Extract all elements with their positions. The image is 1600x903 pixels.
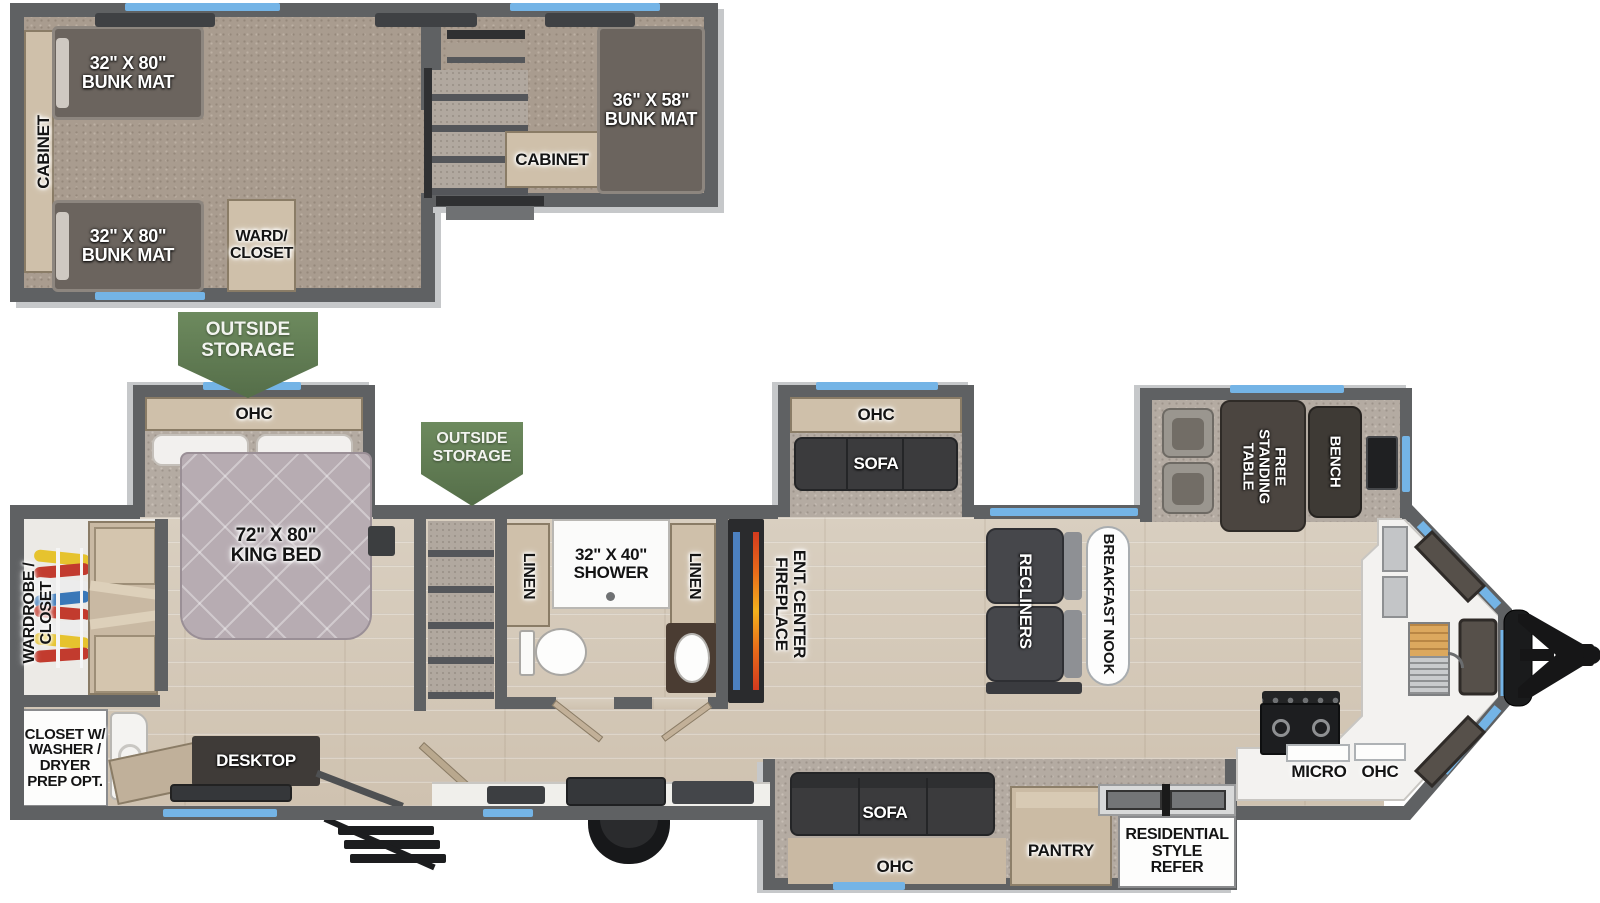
bench-label: BENCH	[1326, 407, 1343, 517]
bedroom-wall	[155, 519, 168, 691]
outside-storage-label: OUTSIDE STORAGE	[201, 320, 295, 362]
bottom-wall	[10, 806, 770, 820]
sofa-slide-ohc-label: OHC	[858, 406, 895, 424]
top-wall	[373, 505, 778, 519]
front-window	[1460, 620, 1496, 694]
loft-window	[95, 292, 205, 300]
wardrobe-cabinet	[88, 521, 158, 695]
main-entry-door	[566, 777, 666, 806]
loft-cabinet-mid-label: CABINET	[515, 151, 588, 169]
roof-vent	[545, 13, 635, 27]
free-standing-table-label: FREE STANDING TABLE	[1237, 412, 1288, 522]
shower-drain	[606, 592, 615, 601]
window	[816, 382, 938, 390]
window	[1402, 436, 1410, 492]
bunk-mat-top-label: 32" X 80" BUNK MAT	[82, 54, 174, 92]
dinette-chair	[1162, 408, 1214, 458]
outside-storage-label: OUTSIDE STORAGE	[433, 430, 512, 465]
king-bed-label: 72" X 80" KING BED	[231, 526, 322, 566]
ent-center-label: ENT. CENTER FIREPLACE	[770, 519, 808, 689]
kitchen-ohc-label: OHC	[1352, 763, 1408, 781]
wardrobe-closet-label: WARDROBE / CLOSET	[22, 548, 58, 678]
slide-sofa-label: SOFA	[853, 455, 898, 473]
refer-label-box: RESIDENTIAL STYLE REFER	[1118, 816, 1236, 888]
loft-stair-landing-rail	[436, 196, 544, 206]
window	[990, 508, 1138, 516]
exterior-steps	[328, 820, 444, 866]
bath-sink	[674, 633, 710, 683]
door-slide-sofa-label: SOFA	[840, 804, 930, 822]
roof-vent	[375, 13, 477, 27]
breakfast-nook-label: BREAKFAST NOOK	[1099, 519, 1117, 689]
shower-label: 32" X 40" SHOWER	[574, 546, 649, 582]
ohc-cabinet	[1354, 743, 1406, 761]
window	[833, 882, 905, 890]
linen-left-label: LINEN	[518, 526, 536, 626]
recliner-base	[986, 682, 1082, 694]
counter-step	[487, 786, 545, 804]
loft-skylight-window	[125, 3, 280, 11]
fireplace-strip	[753, 532, 759, 690]
loft-stair-rail	[424, 68, 432, 198]
rv-floorplan: CABINET 32" X 80" BUNK MAT 32" X 80" BUN…	[0, 0, 1600, 903]
recliner-footrest	[1064, 532, 1082, 600]
window	[163, 809, 277, 817]
kitchen-sink	[1408, 622, 1450, 696]
loft-ward-closet: WARD/ CLOSET	[227, 199, 296, 292]
pantry-label: PANTRY	[1014, 842, 1108, 860]
bedroom-ohc-label: OHC	[236, 405, 273, 423]
microwave-cabinet	[1286, 744, 1350, 762]
loft-skylight-window	[510, 3, 660, 11]
bunk-mat-top: 32" X 80" BUNK MAT	[52, 26, 204, 120]
bunk-mat-bottom-label: 32" X 80" BUNK MAT	[82, 227, 174, 265]
king-bed: 72" X 80" KING BED	[180, 452, 372, 640]
desktop-label: DESKTOP	[216, 752, 296, 770]
loft-cabinet-mid: CABINET	[505, 131, 599, 188]
hitch-crossbar	[1520, 649, 1554, 661]
door-slide-ohc-label: OHC	[850, 858, 940, 876]
closet-rod	[80, 548, 83, 668]
toilet	[519, 630, 535, 676]
recliners-label: RECLINERS	[1014, 521, 1034, 681]
toilet-bowl	[535, 628, 587, 676]
loft-ward-closet-label: WARD/ CLOSET	[230, 229, 293, 263]
main-staircase	[428, 521, 494, 699]
entry-window	[672, 781, 754, 804]
refer-label: RESIDENTIAL STYLE REFER	[1125, 827, 1228, 877]
sofa-cushion-line	[902, 439, 904, 489]
desktop-tray	[170, 784, 292, 802]
linen-right-label: LINEN	[684, 526, 702, 626]
roof-vent	[95, 13, 215, 27]
nightstand	[368, 526, 395, 556]
tv-strip	[733, 532, 740, 690]
bunk-mat-right: 36" X 58" BUNK MAT	[597, 26, 705, 194]
wd-closet-label: CLOSET W/ WASHER / DRYER PREP OPT.	[25, 727, 106, 790]
tall-cabinet	[1382, 576, 1408, 618]
dinette-chair	[1162, 462, 1214, 514]
bunk-mat-right-label: 36" X 58" BUNK MAT	[605, 91, 697, 129]
bath-wall-right	[716, 519, 728, 703]
bunk-mat-bottom: 32" X 80" BUNK MAT	[52, 200, 204, 292]
micro-label: MICRO	[1288, 763, 1350, 781]
slide-sofa: SOFA	[794, 437, 958, 491]
window	[483, 809, 533, 817]
outside-storage-banner: OUTSIDE STORAGE	[421, 422, 523, 506]
stair-wall	[414, 519, 426, 711]
bunk-pillow	[56, 212, 69, 280]
sofa-cushion-line	[846, 439, 848, 489]
window	[1230, 385, 1344, 393]
bunk-pillow	[56, 38, 69, 108]
bedroom-ohc-cabinet: OHC	[145, 397, 363, 431]
wd-closet-label-box: CLOSET W/ WASHER / DRYER PREP OPT.	[22, 709, 108, 807]
bath-wall-left	[495, 519, 507, 709]
recliner-footrest	[1064, 610, 1082, 678]
tall-cabinet	[1382, 526, 1408, 572]
refrigerator	[1098, 784, 1236, 816]
pantry	[1010, 786, 1112, 886]
sofa-slide-ohc: OHC	[790, 397, 962, 433]
top-wall	[10, 505, 140, 519]
desktop: DESKTOP	[192, 736, 320, 786]
loft-cabinet-left-label: CABINET	[35, 87, 53, 217]
loft-stair-landing	[446, 206, 534, 220]
wd-closet-wall	[10, 695, 160, 707]
